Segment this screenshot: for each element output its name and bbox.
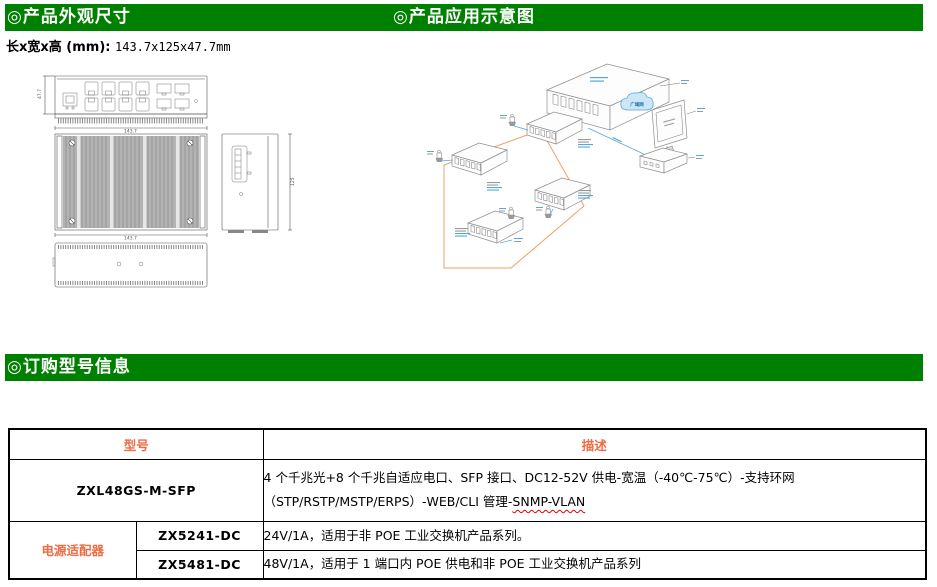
front-view: 47.7 bbox=[37, 76, 207, 135]
top-width-dim: 143.7 bbox=[124, 236, 137, 242]
description-cell: 24V/1A，适用于非 POE 工业交换机产品系列。 bbox=[263, 521, 926, 550]
dimensions-value: 143.7x125x47.7mm bbox=[115, 40, 231, 54]
description-cell: 48V/1A，适用于 1 端口内 POE 供电和非 POE 工业交换机产品系列 bbox=[263, 550, 926, 579]
wan-cloud-label: 广域网 bbox=[630, 101, 644, 108]
datasheet-page: ◎产品外观尺寸 ◎产品应用示意图 长x宽x高 (mm): 143.7x125x4… bbox=[0, 0, 937, 587]
dimension-drawing: 47.7 bbox=[25, 62, 317, 299]
description-text-line1: 4 个千兆光+8 个千兆自适应电口、SFP 接口、DC12-52V 供电-宽温（… bbox=[264, 470, 795, 485]
description-cell: 4 个千兆光+8 个千兆自适应电口、SFP 接口、DC12-52V 供电-宽温（… bbox=[263, 459, 926, 521]
description-text-flagged: SNMP-VLAN bbox=[512, 494, 585, 509]
appearance-section-title: ◎产品外观尺寸 bbox=[7, 4, 131, 31]
industrial-switch-b bbox=[427, 143, 507, 191]
industrial-switch-c bbox=[535, 178, 593, 218]
side-depth-dim: 125 bbox=[290, 177, 296, 186]
ordering-section-title: ◎订购型号信息 bbox=[7, 354, 131, 381]
model-column-header: 型号 bbox=[9, 429, 263, 459]
description-column-header: 描述 bbox=[263, 429, 926, 459]
recorder-box bbox=[640, 148, 704, 173]
rj45-ports bbox=[85, 82, 149, 111]
application-section-title: ◎产品应用示意图 bbox=[393, 4, 535, 31]
side-view: 125 bbox=[222, 134, 296, 233]
bottom-view bbox=[53, 243, 207, 287]
model-cell: ZX5481-DC bbox=[136, 550, 263, 579]
din-rail-clip bbox=[232, 146, 251, 182]
industrial-switch-d bbox=[455, 207, 523, 243]
table-row: ZXL48GS-M-SFP 4 个千兆光+8 个千兆自适应电口、SFP 接口、D… bbox=[9, 459, 926, 521]
ordering-table: 型号 描述 ZXL48GS-M-SFP 4 个千兆光+8 个千兆自适应电口、SF… bbox=[8, 428, 927, 580]
table-header-row: 型号 描述 bbox=[9, 429, 926, 459]
adapter-group-cell: 电源适配器 bbox=[9, 521, 136, 579]
console-port bbox=[63, 93, 77, 109]
description-text-line2: （STP/RSTP/MSTP/ERPS）-WEB/CLI 管理- bbox=[264, 494, 513, 509]
table-row: ZX5481-DC 48V/1A，适用于 1 端口内 POE 供电和非 POE … bbox=[9, 550, 926, 579]
model-cell: ZX5241-DC bbox=[136, 521, 263, 550]
model-cell: ZXL48GS-M-SFP bbox=[9, 459, 263, 521]
table-row: 电源适配器 ZX5241-DC 24V/1A，适用于非 POE 工业交换机产品系… bbox=[9, 521, 926, 550]
application-diagram: 广域网 bbox=[400, 50, 720, 295]
dimensions-line: 长x宽x高 (mm): 143.7x125x47.7mm bbox=[6, 36, 231, 55]
section-bar-top: ◎产品外观尺寸 ◎产品应用示意图 bbox=[5, 4, 923, 31]
top-view: 143.7 bbox=[55, 134, 207, 242]
sfp-slots bbox=[157, 84, 189, 110]
dimensions-label: 长x宽x高 (mm): bbox=[6, 40, 115, 55]
front-width-dim: 143.7 bbox=[124, 129, 137, 135]
monitor bbox=[652, 100, 705, 155]
section-bar-ordering: ◎订购型号信息 bbox=[5, 354, 923, 381]
front-height-dim: 47.7 bbox=[37, 89, 43, 99]
